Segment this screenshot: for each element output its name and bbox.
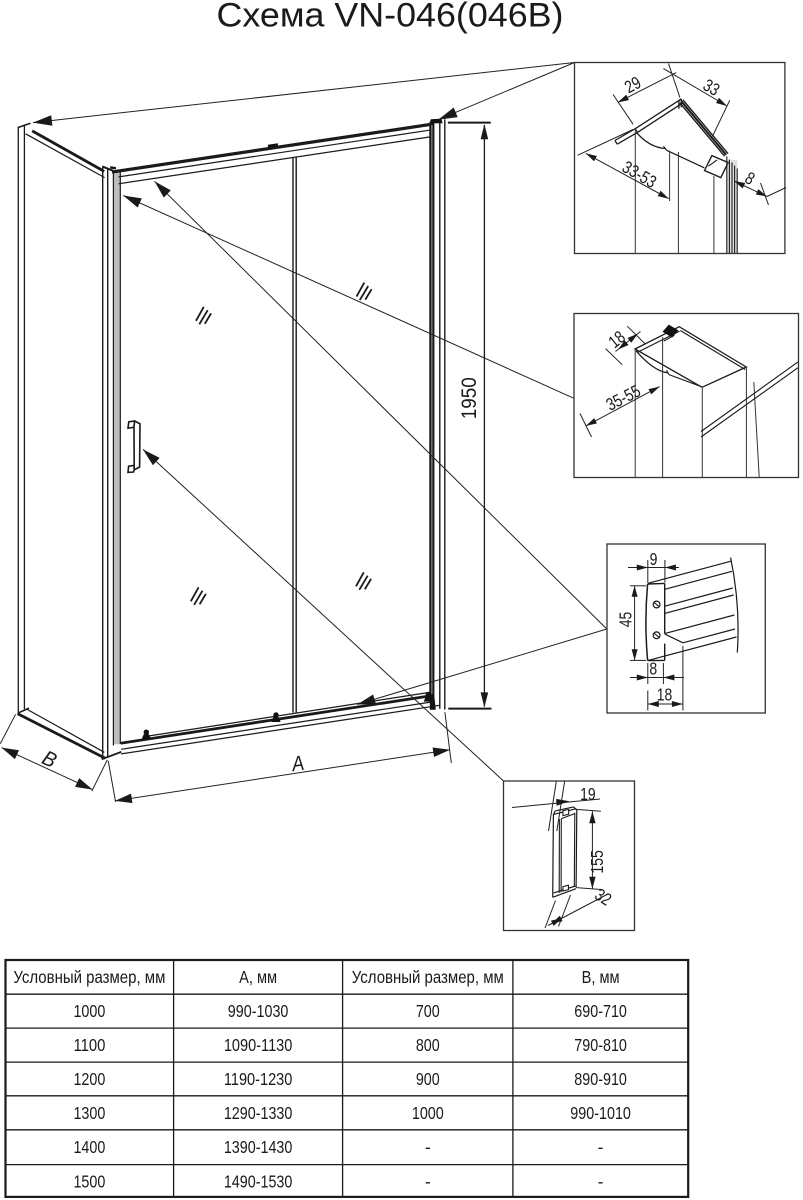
svg-text:1500: 1500 (73, 1171, 105, 1191)
svg-text:Условный размер, мм: Условный размер, мм (352, 967, 504, 987)
svg-text:1390-1430: 1390-1430 (224, 1137, 293, 1157)
svg-text:1100: 1100 (73, 1035, 105, 1055)
svg-text:1000: 1000 (412, 1103, 444, 1123)
svg-text:155: 155 (587, 850, 607, 874)
svg-text:45: 45 (616, 612, 636, 628)
svg-text:1000: 1000 (73, 1001, 105, 1021)
svg-text:690-710: 690-710 (574, 1001, 627, 1021)
svg-text:1950: 1950 (457, 377, 481, 419)
svg-text:18: 18 (657, 685, 673, 705)
svg-text:1490-1530: 1490-1530 (224, 1171, 293, 1191)
svg-text:Схема VN-046(046B): Схема VN-046(046B) (217, 0, 564, 35)
svg-text:1090-1130: 1090-1130 (224, 1035, 293, 1055)
svg-text:990-1030: 990-1030 (228, 1001, 289, 1021)
svg-text:В, мм: В, мм (582, 967, 620, 987)
svg-text:890-910: 890-910 (574, 1069, 627, 1089)
svg-text:790-810: 790-810 (574, 1035, 627, 1055)
svg-text:-: - (425, 1171, 431, 1191)
svg-text:700: 700 (416, 1001, 440, 1021)
svg-text:9: 9 (650, 549, 658, 569)
svg-text:990-1010: 990-1010 (570, 1103, 631, 1123)
svg-text:8: 8 (649, 659, 657, 679)
svg-text:-: - (425, 1137, 431, 1157)
svg-text:-: - (598, 1137, 604, 1157)
svg-text:1400: 1400 (73, 1137, 105, 1157)
svg-text:Условный размер, мм: Условный размер, мм (13, 967, 165, 987)
svg-text:1300: 1300 (73, 1103, 105, 1123)
svg-text:900: 900 (416, 1069, 440, 1089)
svg-text:800: 800 (416, 1035, 440, 1055)
svg-text:1290-1330: 1290-1330 (224, 1103, 293, 1123)
svg-text:-: - (598, 1171, 604, 1191)
svg-text:А, мм: А, мм (239, 967, 277, 987)
svg-text:1200: 1200 (73, 1069, 105, 1089)
svg-text:1190-1230: 1190-1230 (224, 1069, 293, 1089)
